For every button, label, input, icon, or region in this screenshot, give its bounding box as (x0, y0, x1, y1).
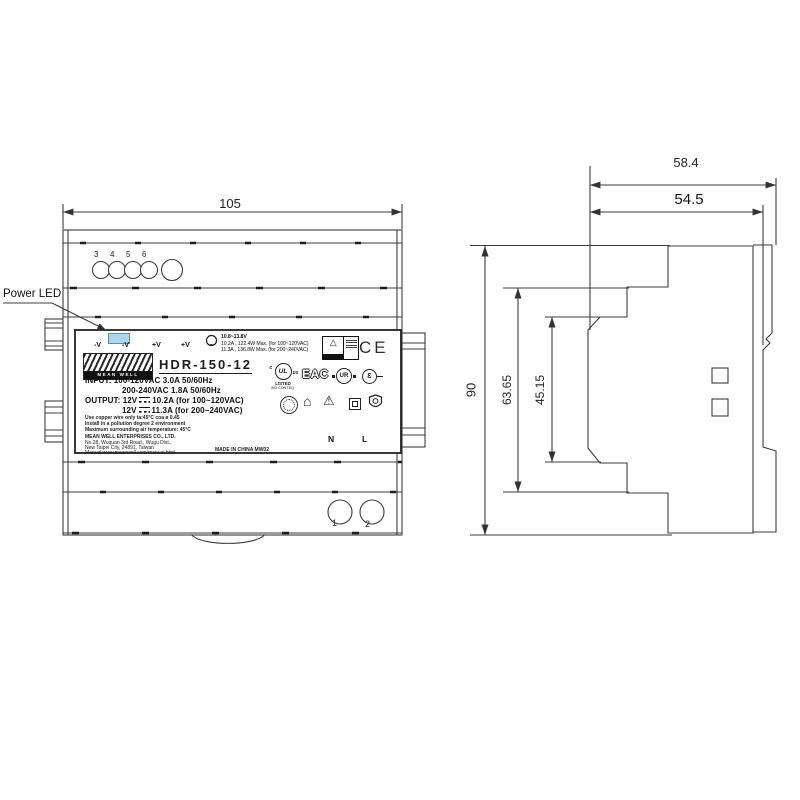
indoor-use-icon: ⌂ (303, 393, 311, 409)
terminal-marking: -V (94, 342, 101, 349)
ul-circle-icon: UL c us (275, 363, 292, 380)
terminal-number: 6 (142, 251, 146, 259)
cert-circle-mark: Ɛ (362, 369, 383, 384)
terminal-number: 3 (94, 251, 98, 259)
max-rating-line: 11.3A , 136.8W Max. (for 200~240VAC) (221, 347, 308, 353)
output-voltage-1: 12V (123, 396, 138, 405)
caution-triangle-icon: ⚠ (323, 393, 335, 409)
eac-mark: EAC (302, 367, 329, 381)
ul-recognized-mark: UR (332, 368, 356, 384)
terminal-number: 4 (110, 251, 114, 259)
terminal-number: 2 (365, 520, 370, 529)
made-in-text: MADE IN CHINA MW02 (215, 447, 269, 453)
height-mid-dimension-label: 63.65 (501, 375, 513, 405)
depth-total-dimension-label: 58.4 (663, 156, 709, 169)
input-rating-1: 100-120VAC 3.0A 50/60Hz (114, 376, 213, 385)
warning-sticker: △ (322, 336, 359, 360)
cert-circle-icon: Ɛ (362, 369, 377, 384)
input-label: INPUT: (85, 376, 111, 385)
height-total-dimension-label: 90 (465, 383, 478, 397)
dc-symbol-icon (139, 407, 150, 413)
output-label: OUTPUT: (85, 396, 120, 405)
spec-label: -V -V +V +V 10.8~13.8V 10.2A , 122.4W Ma… (75, 330, 401, 453)
ul-sub-text: IND.CONT.EQ. (266, 386, 300, 390)
ur-circle-icon: UR (336, 368, 352, 384)
side-view (470, 166, 776, 535)
class2-insulation-icon (349, 398, 361, 410)
terminal-number: 5 (126, 251, 130, 259)
width-dimension-label: 105 (210, 197, 250, 210)
model-number: HDR-150-12 (159, 357, 252, 374)
adjust-range: 10.8~13.8V (221, 334, 247, 340)
depth-case-dimension-label: 54.5 (663, 192, 715, 207)
side-profile (588, 246, 753, 533)
terminal-marking: -V (122, 342, 129, 349)
input-rating-2: 200-240VAC 1.8A 50/60Hz (122, 386, 221, 395)
warning-sticker-triangle-cell: △ (323, 337, 344, 359)
warning-sticker-black-bar (323, 354, 343, 359)
output-rating-1: 10.2A (for 100~120VAC) (152, 396, 243, 405)
safety-note-3: Maximum surrounding air temperature: 45°… (85, 427, 191, 433)
shield-cert-icon (368, 394, 383, 411)
warning-sticker-text-lines (344, 337, 358, 359)
terminal-marking: +V (152, 342, 161, 349)
logo-mw-graphic (84, 354, 152, 371)
output-voltage-2: 12V (122, 406, 137, 415)
terminal-marking: +V (181, 342, 190, 349)
din-slide-tab (192, 536, 264, 544)
technical-drawing-page: 105 Power LED 3 4 5 6 1 2 -V -V +V +V 10… (0, 0, 800, 800)
left-mount-tabs (45, 319, 63, 442)
ul-listed-mark: UL c us LISTED IND.CONT.EQ. (266, 363, 300, 390)
height-inner-dimension-label: 45.15 (534, 375, 546, 405)
max-rating-line: 10.2A , 122.4W Max. (for 100~120VAC) (221, 341, 309, 347)
ul-us: us (293, 366, 299, 381)
neutral-terminal-label: N (328, 434, 334, 444)
round-cert-stamp-icon (280, 396, 298, 414)
din-rail-clip (753, 245, 776, 532)
power-led-label: Power LED (3, 289, 61, 301)
terminal-number: 1 (332, 519, 337, 528)
right-clip-block (402, 333, 425, 447)
ul-letters: UL (279, 368, 288, 375)
manual-url: Manual:www.meanwell.com/manual.html (85, 450, 175, 456)
warning-triangle-icon: △ (323, 337, 343, 348)
output-rating-2: 11.3A (for 200~240VAC) (152, 406, 243, 415)
ul-c: c (270, 361, 273, 376)
voltage-adjust-pot-icon (205, 334, 218, 347)
top-terminal-circles (93, 260, 183, 281)
line-terminal-label: L (362, 434, 367, 444)
dc-symbol-icon (139, 397, 150, 403)
ce-mark: CE (359, 338, 389, 358)
